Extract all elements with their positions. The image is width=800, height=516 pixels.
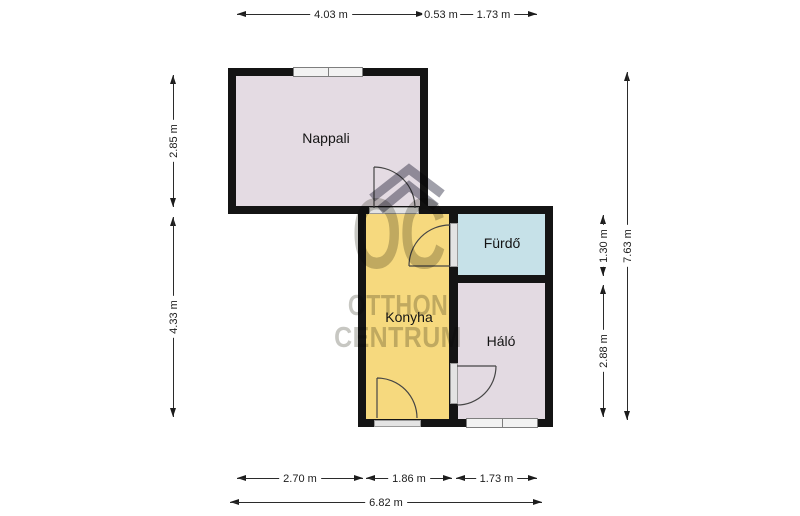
wall-lower-right: [545, 206, 553, 427]
dim-label: 2.70 m: [279, 473, 321, 485]
window-tick: [502, 419, 503, 427]
dim-label: 1.73 m: [473, 9, 515, 21]
door-opening-konyha-bottom: [374, 420, 421, 427]
floorplan-canvas: OC OTTHON CENTRUM Nappali Konyha Fürdő H…: [0, 0, 800, 516]
dim-label: 1.73 m: [476, 473, 518, 485]
wall-lower-left: [358, 206, 366, 427]
room-label-furdo: Fürdő: [484, 235, 521, 251]
dim-top-3: 1.73 m: [450, 9, 537, 20]
window-halo-bottom: [466, 418, 538, 428]
dim-label: 1.30 m: [598, 225, 610, 267]
dim-label: 4.03 m: [310, 9, 352, 21]
dim-label: 4.33 m: [168, 296, 180, 338]
wall-furdo-bottom: [449, 275, 553, 283]
door-opening-konyha-furdo: [450, 223, 458, 267]
room-label-nappali: Nappali: [302, 130, 349, 146]
room-halo: [458, 283, 545, 419]
dim-label: 2.85 m: [168, 120, 180, 162]
dim-right-2: 2.88 m: [598, 285, 609, 417]
dim-label: 7.63 m: [622, 225, 634, 267]
dim-left-1: 2.85 m: [168, 75, 179, 207]
window-nappali-top: [293, 67, 363, 77]
door-opening-konyha-halo: [450, 363, 458, 404]
dim-left-2: 4.33 m: [168, 217, 179, 417]
room-label-konyha: Konyha: [385, 309, 432, 325]
room-label-halo: Háló: [487, 333, 516, 349]
dim-top-1: 4.03 m: [237, 9, 425, 20]
wall-nappali-left: [228, 68, 236, 214]
window-tick: [328, 68, 329, 76]
dim-right-1: 1.30 m: [598, 215, 609, 276]
wall-nappali-right: [420, 68, 428, 214]
dim-label: 6.82 m: [365, 497, 407, 509]
dim-right-total: 7.63 m: [622, 72, 633, 420]
dim-label: 2.88 m: [598, 330, 610, 372]
dim-bottom-2: 1.86 m: [366, 473, 452, 484]
door-opening-nappali-konyha: [369, 207, 419, 214]
dim-bottom-3: 1.73 m: [456, 473, 537, 484]
dim-label: 1.86 m: [388, 473, 430, 485]
dim-top-2: 0.53 m: [422, 9, 460, 21]
dim-bottom-total: 6.82 m: [230, 497, 542, 508]
dim-bottom-1: 2.70 m: [237, 473, 363, 484]
